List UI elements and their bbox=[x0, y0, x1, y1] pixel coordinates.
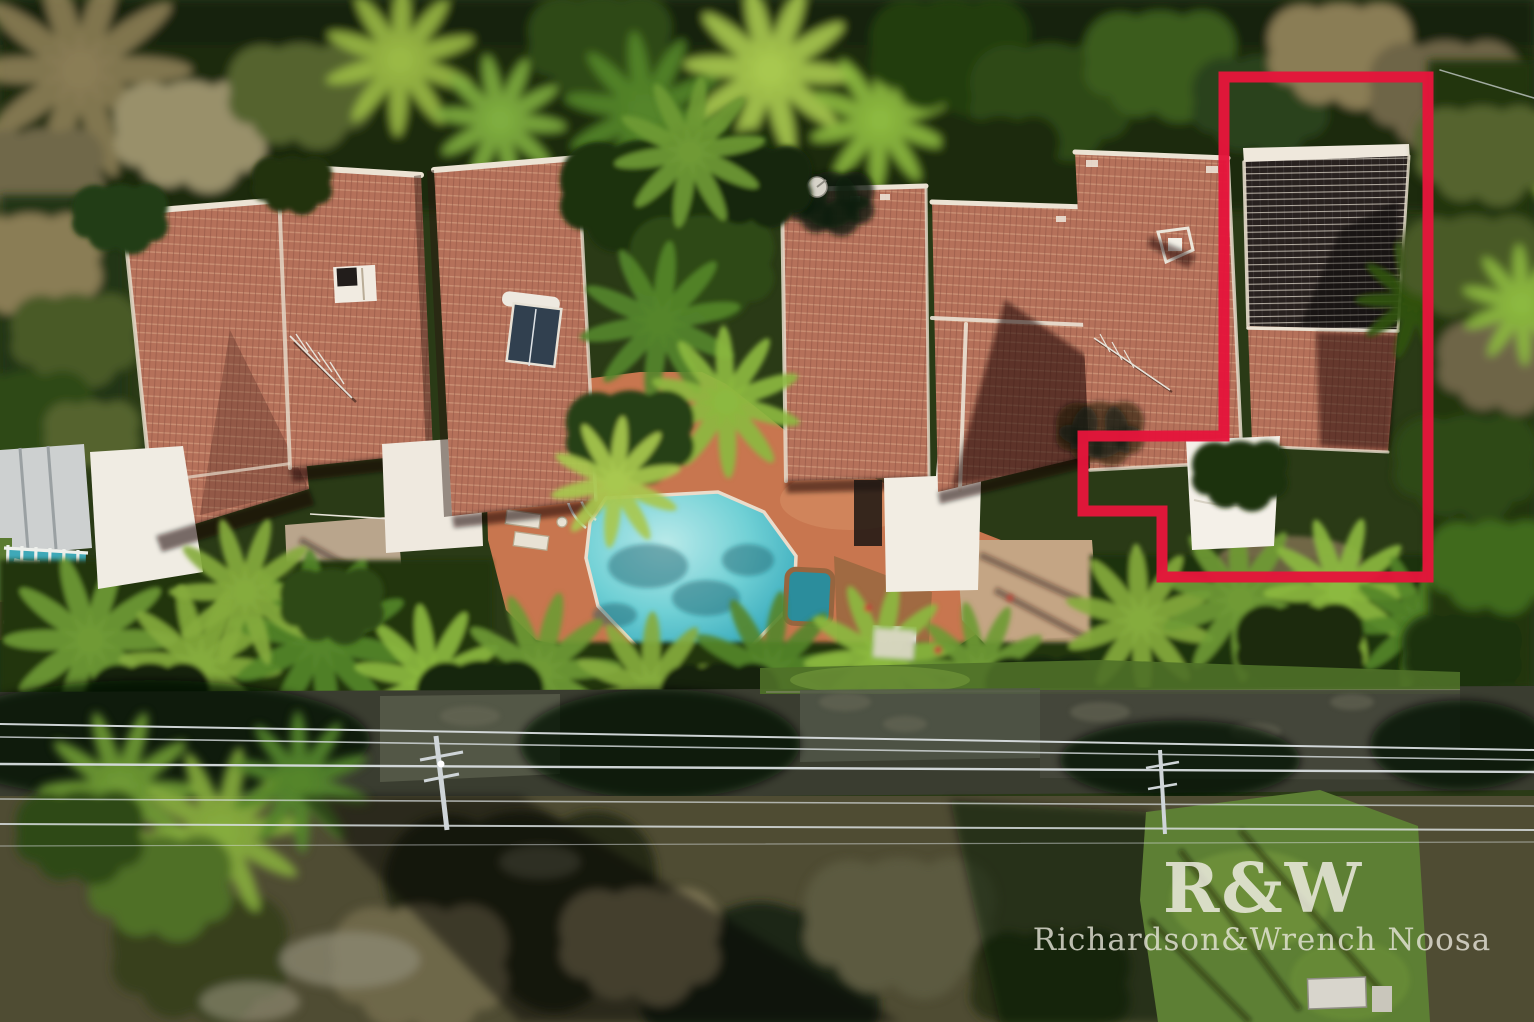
dead-branches bbox=[200, 982, 300, 1022]
roof-vent bbox=[1086, 160, 1098, 167]
roof-vent bbox=[880, 194, 890, 200]
garden-flowers bbox=[934, 646, 942, 654]
aerial-photo-canvas: R&W Richardson&Wrench Noosa bbox=[0, 0, 1534, 1022]
parked-trailer bbox=[1307, 977, 1366, 1009]
garden-flowers bbox=[1007, 595, 1014, 602]
watermark-logo-text: R&W bbox=[1163, 849, 1363, 929]
roof-vent bbox=[1056, 216, 1066, 222]
tree-shadow-on-roof bbox=[1316, 332, 1398, 450]
building-4 bbox=[782, 171, 930, 493]
solar-hot-water bbox=[501, 291, 561, 367]
roof-vent bbox=[1206, 166, 1218, 173]
building-6 bbox=[1056, 152, 1242, 470]
chimney-opening bbox=[337, 267, 358, 286]
building-5 bbox=[932, 202, 1094, 504]
shaded-doorway bbox=[854, 480, 882, 546]
watermark-agency-name: Richardson&Wrench Noosa bbox=[1033, 922, 1491, 958]
dead-branches bbox=[280, 932, 420, 988]
garden-paver bbox=[873, 629, 915, 660]
building-4-roof bbox=[782, 186, 929, 481]
solar-panel bbox=[507, 303, 562, 366]
parked-trailer bbox=[1372, 986, 1392, 1012]
neighbour-roof-panels bbox=[0, 444, 92, 556]
garden-flowers bbox=[864, 604, 872, 612]
aerial-photo: R&W Richardson&Wrench Noosa bbox=[0, 0, 1534, 1022]
building-1-white-annex bbox=[90, 446, 203, 589]
